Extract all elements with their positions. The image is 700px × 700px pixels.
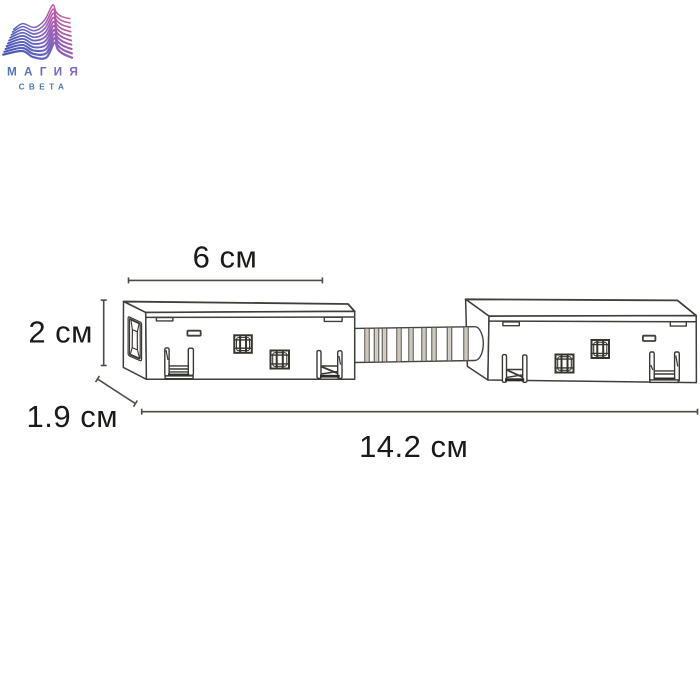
svg-text:МАГИЯ: МАГИЯ (7, 65, 85, 79)
svg-text:2 см: 2 см (28, 315, 93, 350)
svg-text:СВЕТА: СВЕТА (19, 83, 69, 92)
svg-text:14.2 см: 14.2 см (359, 429, 468, 464)
svg-text:6 см: 6 см (193, 240, 258, 275)
svg-text:1.9 см: 1.9 см (27, 399, 119, 434)
